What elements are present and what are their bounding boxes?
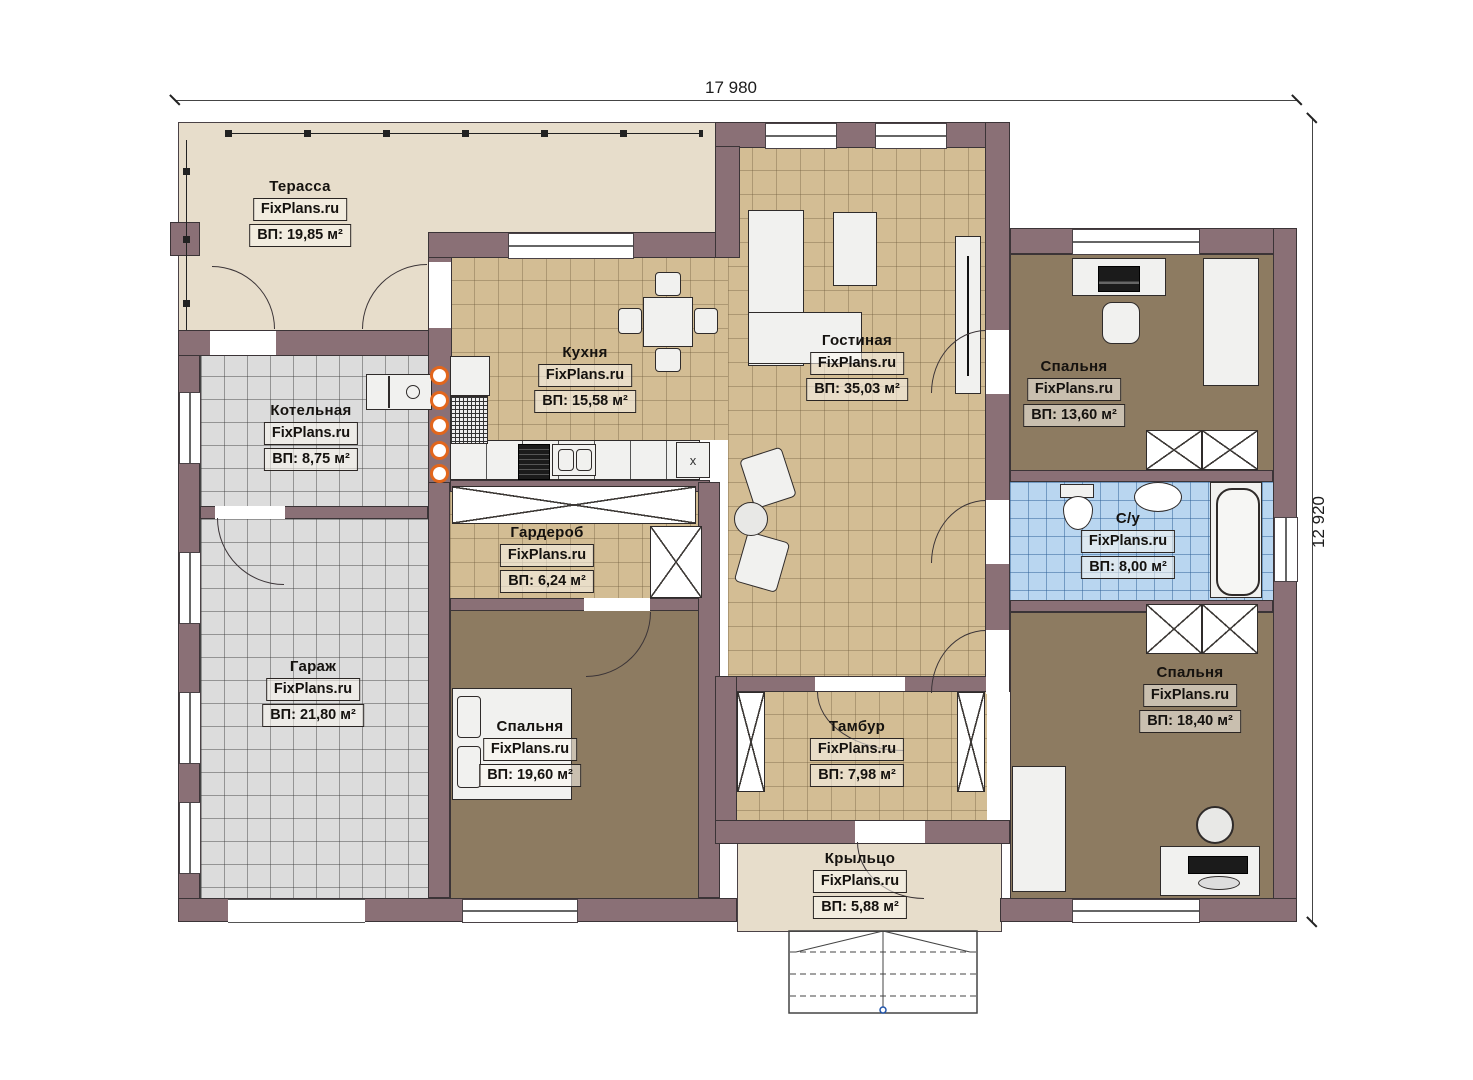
bed-left-pillow — [457, 746, 481, 788]
monitor-bed3 — [1188, 856, 1248, 874]
dining-chair-top — [655, 272, 681, 296]
room-name: Тамбур — [829, 718, 885, 735]
area-box: ВП: 18,40 м² — [1139, 710, 1241, 733]
coffee-table — [833, 212, 877, 286]
window-living-top-1 — [765, 123, 837, 149]
stove — [450, 396, 488, 444]
terrace-left-post — [183, 300, 190, 307]
window-left-garage-2 — [179, 692, 201, 764]
room-label-garage: Гараж FixPlans.ru ВП: 21,80 м² — [262, 658, 364, 727]
bathtub — [1216, 488, 1260, 596]
watermark-box: FixPlans.ru — [810, 738, 904, 761]
watermark-box: FixPlans.ru — [500, 544, 594, 567]
radiator-symbol — [430, 441, 449, 460]
room-name: Спальня — [1157, 664, 1224, 681]
closet-bed3 — [1146, 604, 1202, 654]
keyboard-bed3 — [1198, 876, 1240, 890]
kitchen-counter-left — [450, 356, 490, 396]
room-name: Гараж — [290, 658, 336, 675]
area-box: ВП: 8,00 м² — [1081, 556, 1175, 579]
area-box: ВП: 6,24 м² — [500, 570, 594, 593]
printer — [1098, 266, 1140, 292]
dining-table — [643, 297, 693, 347]
boiler-unit-divider — [388, 376, 390, 408]
office-chair-bed2 — [1102, 302, 1140, 344]
wall-living-top — [715, 122, 1010, 148]
radiator-symbol — [430, 366, 449, 385]
terrace-left-post — [183, 236, 190, 243]
window-left-garage-1 — [179, 552, 201, 624]
room-label-bedroom-bottom-right: Спальня FixPlans.ru ВП: 18,40 м² — [1139, 664, 1241, 733]
area-box: ВП: 13,60 м² — [1023, 404, 1125, 427]
dimension-width-label: 17 980 — [705, 78, 757, 98]
window-bed3-bottom — [1072, 899, 1200, 923]
door-opening-living-vestibule — [815, 677, 905, 691]
room-label-bedroom-top-right: Спальня FixPlans.ru ВП: 13,60 м² — [1023, 358, 1125, 427]
area-box: ВП: 15,58 м² — [534, 390, 636, 413]
area-box: ВП: 7,98 м² — [810, 764, 904, 787]
room-label-living: Гостиная FixPlans.ru ВП: 35,03 м² — [806, 332, 908, 401]
bed-bottom-right — [1012, 766, 1066, 892]
bed-top-right — [1203, 258, 1259, 386]
door-opening-terrace-house — [429, 262, 451, 328]
room-label-boiler: Котельная FixPlans.ru ВП: 8,75 м² — [264, 402, 358, 471]
radiator-symbol — [430, 464, 449, 483]
boiler-gauge — [406, 385, 420, 399]
bed-left-pillow — [457, 696, 481, 738]
room-name: Терасса — [269, 178, 331, 195]
watermark-box: FixPlans.ru — [538, 364, 632, 387]
area-box: ВП: 35,03 м² — [806, 378, 908, 401]
window-kitchen-top — [508, 233, 634, 259]
wall-living-left-stub — [715, 146, 740, 258]
bath-sink — [1134, 482, 1182, 512]
area-box: ВП: 19,85 м² — [249, 224, 351, 247]
wall-wardrobe-bedroom — [450, 598, 710, 611]
window-living-top-2 — [875, 123, 947, 149]
room-label-terrace: Терасса FixPlans.ru ВП: 19,85 м² — [249, 178, 351, 247]
room-name: Гостиная — [822, 332, 892, 349]
dishwasher — [518, 444, 550, 480]
kitchen-sink-bowl — [558, 449, 574, 471]
terrace-posts — [225, 130, 703, 137]
watermark-box: FixPlans.ru — [253, 198, 347, 221]
stairs — [788, 930, 978, 1014]
dining-chair-left — [618, 308, 642, 334]
room-label-wardrobe: Гардероб FixPlans.ru ВП: 6,24 м² — [500, 524, 594, 593]
kitchen-sink-bowl — [576, 449, 592, 471]
room-label-bathroom: С/у FixPlans.ru ВП: 8,00 м² — [1081, 510, 1175, 579]
dining-chair-bottom — [655, 348, 681, 372]
wardrobe-closet-vertical — [650, 526, 702, 598]
watermark-box: FixPlans.ru — [264, 422, 358, 445]
wall-hallway — [985, 122, 1010, 690]
door-opening-bed3 — [986, 630, 1009, 694]
terrace-left-post — [183, 168, 190, 175]
watermark-box: FixPlans.ru — [1143, 684, 1237, 707]
closet-bed2 — [1202, 430, 1258, 470]
door-opening-vestibule-porch — [855, 821, 925, 843]
watermark-box: FixPlans.ru — [483, 738, 577, 761]
window-left-garage-3 — [179, 802, 201, 874]
side-table-round — [734, 502, 768, 536]
watermark-box: FixPlans.ru — [1027, 378, 1121, 401]
room-name: Котельная — [270, 402, 351, 419]
door-opening-bed2 — [986, 330, 1009, 394]
room-name: С/у — [1116, 510, 1140, 527]
area-box: ВП: 8,75 м² — [264, 448, 358, 471]
wall-vestibule-left — [715, 676, 737, 844]
window-bed1-bottom — [462, 899, 578, 923]
vestibule-closet-right — [957, 692, 985, 792]
room-name: Гардероб — [510, 524, 583, 541]
dimension-height-label: 12 920 — [1309, 496, 1329, 548]
window-left-boiler — [179, 392, 201, 464]
door-opening-terrace — [210, 331, 276, 355]
door-opening-bath — [986, 500, 1009, 564]
garage-door-opening — [228, 899, 365, 923]
watermark-box: FixPlans.ru — [266, 678, 360, 701]
area-box: ВП: 21,80 м² — [262, 704, 364, 727]
vestibule-closet-left — [737, 692, 765, 792]
room-name: Спальня — [497, 718, 564, 735]
room-label-porch: Крыльцо FixPlans.ru ВП: 5,88 м² — [813, 850, 907, 919]
area-box: ВП: 5,88 м² — [813, 896, 907, 919]
watermark-box: FixPlans.ru — [810, 352, 904, 375]
room-name: Кухня — [562, 344, 607, 361]
room-name: Крыльцо — [825, 850, 895, 867]
door-opening-bedroom-left — [584, 598, 650, 611]
kitchen-counter-x-cell: x — [676, 442, 710, 478]
room-label-bedroom-left: Спальня FixPlans.ru ВП: 19,60 м² — [479, 718, 581, 787]
wardrobe-closet-horizontal — [452, 486, 696, 524]
dimension-line-top — [175, 100, 1297, 101]
watermark-box: FixPlans.ru — [813, 870, 907, 893]
dining-chair-right — [694, 308, 718, 334]
plant-pot — [1196, 806, 1234, 844]
watermark-box: FixPlans.ru — [1081, 530, 1175, 553]
closet-bed3 — [1202, 604, 1258, 654]
radiator-symbol — [430, 391, 449, 410]
closet-bed2 — [1146, 430, 1202, 470]
window-bed2-top — [1072, 229, 1200, 255]
wall-garage-bedroom — [428, 482, 450, 898]
boiler-unit — [366, 374, 432, 410]
window-right-bath — [1274, 517, 1298, 582]
room-label-vestibule: Тамбур FixPlans.ru ВП: 7,98 м² — [810, 718, 904, 787]
wall-bed2-bath — [1010, 470, 1273, 482]
room-label-kitchen: Кухня FixPlans.ru ВП: 15,58 м² — [534, 344, 636, 413]
radiator-symbol — [430, 416, 449, 435]
area-box: ВП: 19,60 м² — [479, 764, 581, 787]
room-name: Спальня — [1041, 358, 1108, 375]
